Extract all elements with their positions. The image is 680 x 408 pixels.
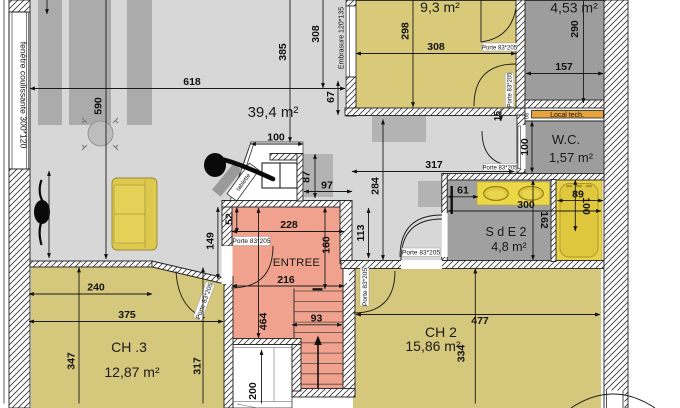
- svg-text:15: 15: [493, 111, 503, 121]
- svg-text:300: 300: [517, 199, 535, 211]
- svg-text:15,86 m²: 15,86 m²: [405, 338, 461, 354]
- svg-text:240: 240: [87, 282, 105, 294]
- svg-text:Porte 83*205: Porte 83*205: [508, 72, 514, 108]
- svg-text:160: 160: [321, 236, 333, 254]
- svg-text:W.C.: W.C.: [552, 132, 580, 147]
- svg-text:590: 590: [93, 97, 105, 115]
- svg-text:Porte 83*205: Porte 83*205: [362, 268, 369, 306]
- svg-text:Porte 83*205: Porte 83*205: [482, 165, 518, 171]
- svg-text:308: 308: [427, 41, 445, 53]
- svg-text:Local tech.: Local tech.: [550, 112, 584, 119]
- svg-text:618: 618: [183, 76, 201, 88]
- svg-text:97: 97: [321, 180, 333, 192]
- svg-text:87: 87: [301, 171, 313, 183]
- svg-text:39,4 m²: 39,4 m²: [248, 104, 299, 121]
- svg-text:464: 464: [258, 313, 270, 331]
- svg-text:216: 216: [277, 274, 295, 286]
- svg-text:284: 284: [370, 177, 382, 195]
- svg-text:ENTREE: ENTREE: [273, 257, 321, 269]
- svg-text:298: 298: [400, 22, 412, 40]
- svg-text:308: 308: [310, 25, 322, 43]
- svg-text:228: 228: [280, 219, 298, 231]
- svg-text:9,3 m²: 9,3 m²: [420, 0, 460, 15]
- svg-text:Porte 83*205: Porte 83*205: [233, 238, 271, 245]
- svg-text:200: 200: [247, 382, 259, 400]
- svg-text:317: 317: [192, 357, 204, 375]
- svg-text:375: 375: [118, 309, 136, 321]
- svg-text:Embrasure 120*135: Embrasure 120*135: [339, 7, 346, 69]
- svg-text:61: 61: [457, 185, 469, 197]
- svg-text:CH .3: CH .3: [111, 339, 147, 355]
- svg-text:1,57 m²: 1,57 m²: [549, 150, 594, 165]
- svg-text:Porte 83*205: Porte 83*205: [482, 45, 518, 51]
- svg-text:fenêtre coulissante 300*120: fenêtre coulissante 300*120: [19, 42, 29, 149]
- svg-text:347: 347: [66, 352, 78, 370]
- svg-text:334: 334: [456, 345, 468, 363]
- svg-text:290: 290: [569, 20, 581, 38]
- svg-text:113: 113: [355, 224, 367, 241]
- svg-text:12,87 m²: 12,87 m²: [104, 364, 160, 380]
- svg-text:162: 162: [538, 211, 550, 229]
- svg-text:4,8 m²: 4,8 m²: [491, 240, 526, 254]
- svg-text:100: 100: [580, 197, 592, 215]
- svg-text:Porte 83*205: Porte 83*205: [402, 250, 440, 257]
- svg-text:08: 08: [525, 113, 531, 119]
- svg-text:317: 317: [425, 159, 443, 171]
- svg-text:157: 157: [555, 61, 573, 73]
- svg-text:S d E 2: S d E 2: [486, 225, 527, 239]
- svg-text:67: 67: [325, 91, 337, 103]
- svg-text:385: 385: [277, 43, 289, 61]
- svg-text:93: 93: [311, 313, 323, 325]
- svg-text:4,53 m²: 4,53 m²: [550, 0, 598, 16]
- svg-text:52: 52: [224, 213, 236, 225]
- svg-text:100: 100: [519, 138, 531, 156]
- svg-text:477: 477: [471, 315, 489, 327]
- svg-text:149: 149: [205, 232, 217, 250]
- svg-text:100: 100: [267, 132, 285, 144]
